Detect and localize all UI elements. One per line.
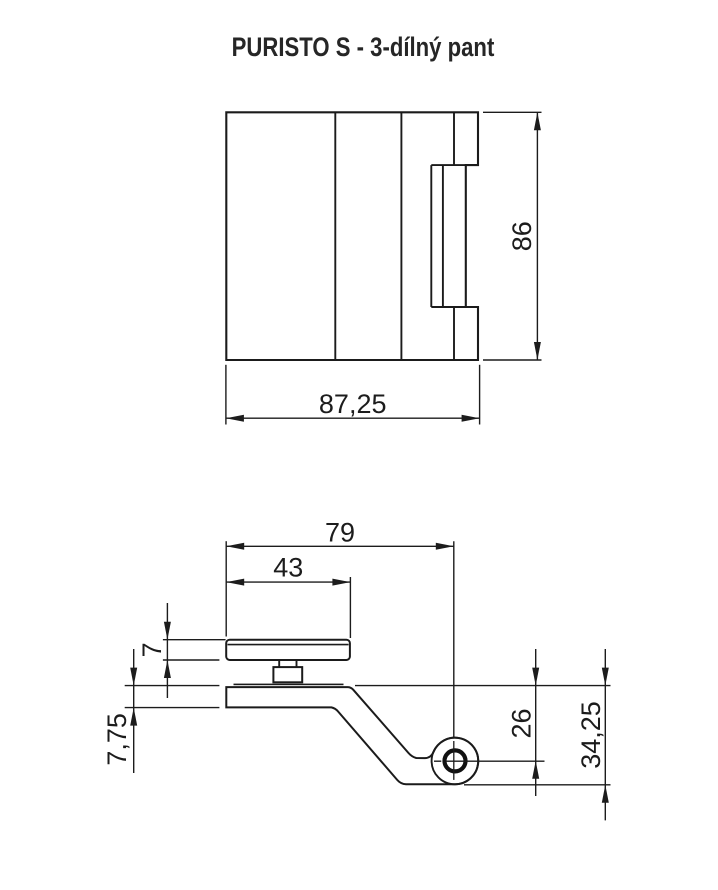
svg-text:34,25: 34,25 [576,701,606,769]
svg-text:43: 43 [273,553,303,583]
svg-text:26: 26 [507,708,537,738]
svg-text:PURISTO S - 3-dílný pant: PURISTO S - 3-dílný pant [232,33,495,63]
svg-text:7: 7 [137,642,167,657]
svg-text:87,25: 87,25 [319,389,387,419]
svg-text:7,75: 7,75 [102,713,132,766]
svg-text:86: 86 [507,221,537,251]
svg-text:79: 79 [325,518,355,548]
